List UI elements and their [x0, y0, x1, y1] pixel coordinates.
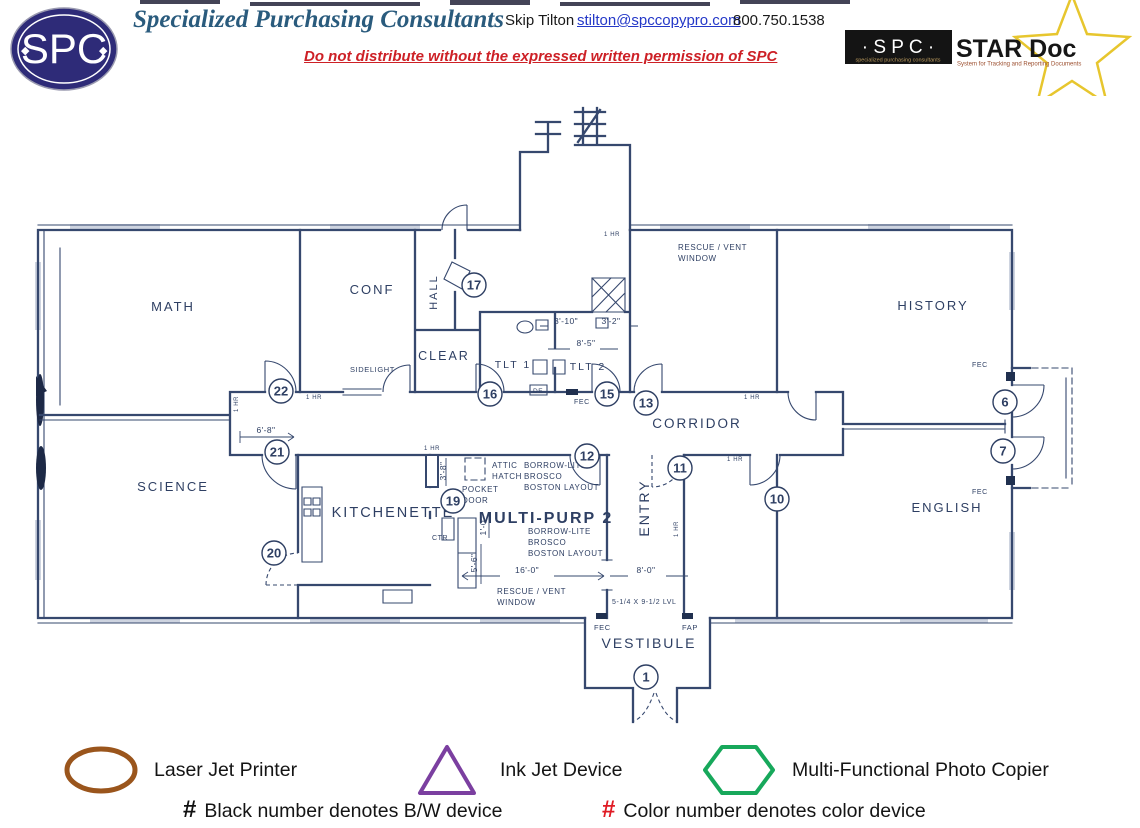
annotation-attic: ATTIC — [492, 461, 518, 470]
device-marker-12: 12 — [575, 444, 599, 468]
legend-label: Multi-Functional Photo Copier — [792, 759, 1049, 782]
dimension-5-6: 5'-6" — [469, 554, 479, 573]
room-label-multi-purp-2: MULTI-PURP 2 — [479, 510, 614, 527]
hash-symbol-icon: # — [183, 796, 196, 823]
annotation-fec: FEC — [972, 489, 988, 496]
legend-item-laser-jet-printer: Laser Jet Printer — [62, 744, 297, 796]
kitchen-counter — [302, 487, 322, 562]
scan-blob — [36, 446, 46, 490]
dimension-8-5: 8'-5" — [577, 338, 596, 348]
device-marker-1: 1 — [634, 665, 658, 689]
room-label-math: MATH — [151, 299, 195, 314]
hexagon-icon — [700, 744, 778, 796]
device-marker-7: 7 — [991, 439, 1015, 463]
annotation-pocket: POCKET — [462, 485, 499, 494]
legend-label: Ink Jet Device — [500, 759, 622, 782]
device-marker-11: 11 — [668, 456, 692, 480]
room-label-vestibule: VESTIBULE — [601, 635, 696, 651]
annotation-rescue-vent: RESCUE / VENT — [497, 587, 566, 596]
device-marker-20: 20 — [262, 541, 286, 565]
room-label-hall: HALL — [428, 274, 440, 310]
device-number: 15 — [600, 387, 614, 402]
annotation-borrow-lite: BORROW-LITE — [528, 527, 591, 536]
wall-ticks — [566, 372, 1015, 619]
room-label-english: ENGLISH — [911, 500, 982, 515]
device-number: 19 — [446, 494, 460, 509]
device-marker-16: 16 — [478, 382, 502, 406]
device-number: 7 — [999, 444, 1006, 459]
room-label-tlt-1: TLT 1 — [495, 359, 531, 371]
annotation-brosco: BROSCO — [524, 472, 562, 481]
room-label-history: HISTORY — [897, 298, 968, 313]
annotation-fec: FEC — [594, 623, 611, 632]
device-number: 16 — [483, 387, 497, 402]
annotation-1-hr: 1 HR — [424, 446, 440, 452]
device-number: 17 — [467, 278, 481, 293]
device-marker-13: 13 — [634, 391, 658, 415]
legend-label: Laser Jet Printer — [154, 759, 297, 782]
device-number: 1 — [642, 670, 649, 685]
annotation-1-hr: 1 HR — [674, 521, 680, 537]
room-label-science: SCIENCE — [137, 479, 209, 494]
right-alcove — [1012, 368, 1072, 488]
plan-labels: MATHCONFHALLCLEARTLT 1TLT 2CORRIDORHISTO… — [137, 232, 1017, 689]
annotation-window: WINDOW — [678, 254, 717, 263]
annotation-boston-layout: BOSTON LAYOUT — [524, 483, 599, 492]
room-label-entry: ENTRY — [636, 479, 652, 536]
annotation-hatch: HATCH — [492, 472, 522, 481]
room-label-corridor: CORRIDOR — [652, 416, 742, 431]
dimension-1-0: 1'-0" — [478, 517, 488, 536]
annotation-window: WINDOW — [497, 598, 536, 607]
device-marker-22: 22 — [269, 379, 293, 403]
annotation-1-hr: 1 HR — [727, 457, 743, 463]
annotation-sidelight: SIDELIGHT — [350, 365, 395, 374]
legend-note-color: #Color number denotes color device — [602, 796, 926, 824]
annotation-1-hr: 1 HR — [604, 232, 620, 238]
device-number: 22 — [274, 384, 288, 399]
annotation-fap: FAP — [682, 623, 698, 632]
annotation-rescue-vent: RESCUE / VENT — [678, 243, 747, 252]
room-label-kitchenette: KITCHENETTE — [332, 505, 455, 521]
room-label-clear: CLEAR — [418, 349, 470, 363]
annotation-boston-layout: BOSTON LAYOUT — [528, 549, 603, 558]
device-marker-15: 15 — [595, 382, 619, 406]
dimension-3-10: 3'-10" — [554, 316, 578, 326]
dimension-3-8: 3'-8" — [438, 462, 448, 481]
annotation-fec: FEC — [972, 362, 988, 369]
dimension-8-0: 8'-0" — [637, 565, 656, 575]
device-marker-17: 17 — [462, 273, 486, 297]
dimension-16-0: 16'-0" — [515, 565, 539, 575]
legend-note-bw: #Black number denotes B/W device — [183, 796, 502, 824]
device-number: 20 — [267, 546, 281, 561]
room-label-conf: CONF — [350, 282, 395, 297]
annotation-brosco: BROSCO — [528, 538, 566, 547]
device-number: 11 — [673, 461, 687, 476]
device-number: 6 — [1001, 395, 1008, 410]
floor-plan: MATHCONFHALLCLEARTLT 1TLT 2CORRIDORHISTO… — [0, 0, 1140, 828]
corridor-walls — [40, 389, 1005, 455]
annotation-fec: FEC — [574, 399, 590, 406]
legend-item-ink-jet-device: Ink Jet Device — [408, 744, 622, 796]
top-protrusion-walls — [520, 108, 630, 230]
dimension-6-8: 6'-8" — [257, 425, 276, 435]
sink-fixture — [517, 321, 533, 333]
device-marker-19: 19 — [441, 489, 465, 513]
annotation-1-hr: 1 HR — [234, 396, 240, 412]
ellipse-icon — [62, 744, 140, 796]
triangle-icon — [408, 744, 486, 796]
device-number: 21 — [270, 445, 284, 460]
device-number: 12 — [580, 449, 594, 464]
device-marker-6: 6 — [993, 390, 1017, 414]
hash-symbol-icon: # — [602, 796, 615, 823]
page: { "header": { "logo": { "text": "SPC" },… — [0, 0, 1140, 828]
legend-item-multi-functional-photo-copier: Multi-Functional Photo Copier — [700, 744, 1049, 796]
vestibule-door-arcs — [634, 693, 676, 721]
room-label-tlt-2: TLT 2 — [570, 361, 606, 373]
pocket-door-wall — [426, 455, 438, 487]
device-number: 13 — [639, 396, 653, 411]
attic-hatch-outline — [465, 458, 485, 480]
dimension-3-2: 3'-2" — [602, 316, 621, 326]
annotation-1-hr: 1 HR — [744, 395, 760, 401]
annotation-5-1-4-x-9-1-2-lvl: 5-1/4 X 9-1/2 LVL — [612, 599, 677, 606]
annotation-1-hr: 1 HR — [306, 395, 322, 401]
annotation-door: DOOR — [462, 496, 488, 505]
device-marker-10: 10 — [765, 487, 789, 511]
shaft-hatch — [592, 278, 625, 312]
device-marker-21: 21 — [265, 440, 289, 464]
device-number: 10 — [770, 492, 784, 507]
annotation-de: DE — [533, 388, 543, 395]
annotation-ctr: CTR — [432, 535, 448, 542]
